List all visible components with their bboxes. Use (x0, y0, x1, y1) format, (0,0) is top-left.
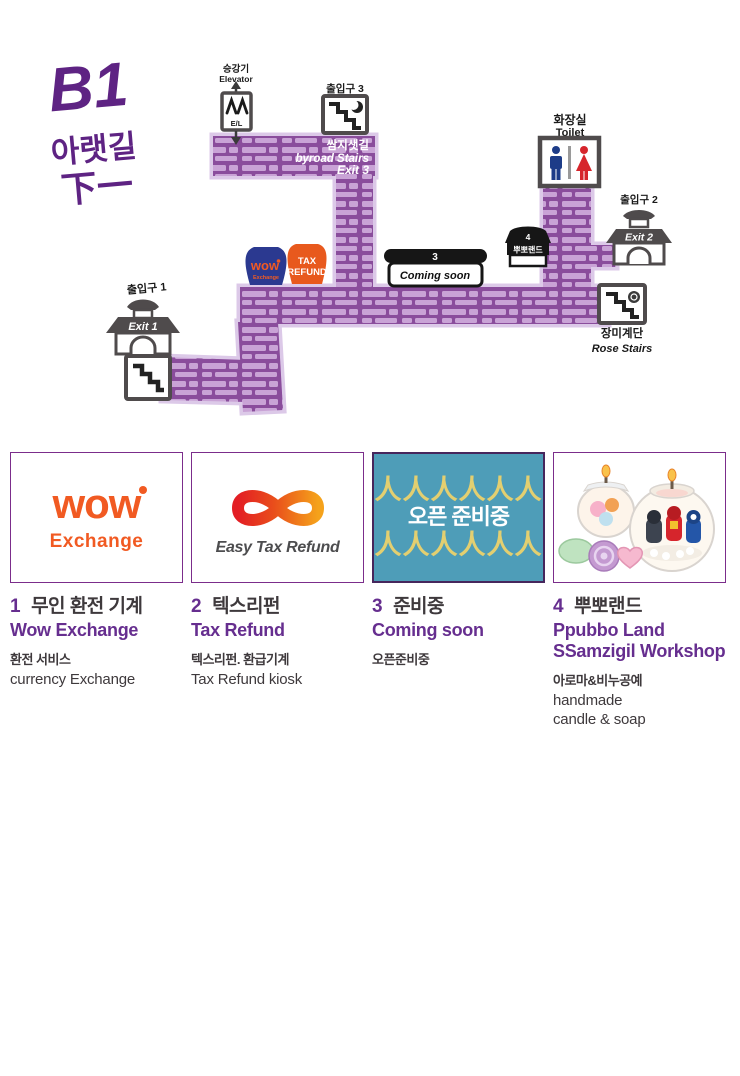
wow-shop-dot (277, 259, 281, 263)
wow-shop-text: wow (250, 258, 280, 273)
candle-soap-photo (554, 453, 725, 582)
people-figures-row: 人人人人人人 (375, 531, 543, 559)
legend-desc-ko: 아로마&비누공예 (553, 670, 726, 689)
exit2-marker: 출입구 2 Exit 2 (606, 193, 672, 264)
legend-number: 3 (372, 596, 382, 617)
legend-title-row: 2텍스리펀 (191, 591, 364, 618)
infinity-icon (214, 479, 342, 537)
legend-item-ppubbo-land: 4뿌뽀랜드 Ppubbo LandSSamzigil Workshop 아로마&… (553, 452, 726, 730)
exit2-arch (628, 248, 650, 264)
svg-text:쌈지샛길: 쌈지샛길 (327, 138, 369, 152)
ppubbo-number: 4 (526, 232, 531, 242)
coming-soon-shop-marker: 3 Coming soon (384, 249, 487, 286)
legend-title-en: Coming soon (372, 620, 545, 641)
people-figures-row: 人人人人人人 (375, 476, 543, 504)
floor-guide-page: B1 아랫길 下一 쌈지샛길 byroad Stairs Exit 3 승강기 … (0, 0, 740, 1076)
legend-title-en: Tax Refund (191, 620, 364, 641)
legend-item-tax-refund: Easy Tax Refund 2텍스리펀 Tax Refund 텍스리펀. 환… (191, 452, 364, 690)
elevator-el-text: E/L (231, 119, 243, 128)
easy-tax-refund-logo-text: Easy Tax Refund (216, 539, 340, 557)
legend-title-ko: 뿌뽀랜드 (574, 596, 642, 617)
floor-title-b1: B1 (46, 50, 131, 126)
coming-soon-number: 3 (432, 252, 438, 263)
exit2-label: 출입구 2 (620, 193, 658, 206)
wow-shop-marker: wow Exchange (245, 247, 286, 285)
rose-icon (628, 291, 640, 303)
coming-soon-text: Coming soon (400, 270, 471, 282)
coming-soon-banner-box: 人人人人人人 오픈 준비중 人人人人人人 (372, 452, 545, 583)
legend-desc-ko: 텍스리펀. 환급기계 (191, 649, 364, 668)
legend-number: 4 (553, 596, 563, 617)
tax-shop-line1: TAX (298, 256, 317, 267)
wow-logo-sub: Exchange (50, 531, 144, 553)
tax-refund-logo-box: Easy Tax Refund (191, 452, 364, 583)
banner-text: 오픈 준비중 (408, 505, 509, 529)
ppubbo-body (510, 255, 546, 266)
legend-title-en: Ppubbo LandSSamzigil Workshop (553, 620, 726, 662)
exit2-neck (630, 219, 648, 227)
wow-logo: wow Exchange (50, 483, 144, 553)
exit1-neck (134, 310, 152, 318)
legend-desc-ko: 오픈준비중 (372, 649, 545, 668)
rose-stairs-marker: 장미계단 Rose Stairs (592, 285, 653, 355)
legend-item-coming-soon: 人人人人人人 오픈 준비중 人人人人人人 3준비중 Coming soon 오픈… (372, 452, 545, 668)
exit1-marker: 출입구 1 Exit 1 (106, 279, 180, 399)
ppubbo-text: 뿌뽀랜드 (513, 245, 543, 255)
legend-title-en: Wow Exchange (10, 620, 183, 641)
legend-desc-en: Tax Refund kiosk (191, 671, 364, 690)
exit1-label: 출입구 1 (126, 279, 167, 296)
tax-shop-line2: REFUND (287, 267, 327, 278)
moon-icon-cut (349, 100, 359, 110)
exit3-label: 출입구 3 (326, 82, 364, 95)
floor-title-hanja: 下一 (59, 164, 134, 211)
legend-title-ko: 무인 환전 기계 (31, 596, 142, 617)
legend-title-row: 1무인 환전 기계 (10, 591, 183, 618)
legend-desc-ko: 환전 서비스 (10, 649, 183, 668)
wow-exchange-logo-box: wow Exchange (10, 452, 183, 583)
legend-title-ko: 텍스리펀 (212, 596, 280, 617)
legend-number: 2 (191, 596, 201, 617)
rose-label-ko: 장미계단 (601, 326, 644, 340)
tax-refund-shop-marker: TAX REFUND (287, 244, 327, 284)
legend-desc-en: handmadecandle & soap (553, 692, 726, 730)
wow-logo-word: wow (52, 483, 140, 525)
legend-title-row: 4뿌뽀랜드 (553, 591, 726, 618)
exit2-top-roof (623, 210, 655, 219)
svg-text:Exit 3: Exit 3 (337, 163, 369, 177)
exit1-gate-text: Exit 1 (128, 321, 157, 333)
legend-title-row: 3준비중 (372, 591, 545, 618)
wow-shop-sub: Exchange (253, 275, 279, 281)
floor-title: B1 아랫길 下一 (43, 50, 142, 212)
exit3-marker: 출입구 3 (323, 82, 367, 133)
toilet-marker: 화장실 Toilet (540, 112, 599, 186)
b1-floor-map: B1 아랫길 下一 쌈지샛길 byroad Stairs Exit 3 승강기 … (0, 0, 740, 446)
wow-logo-dot (139, 486, 147, 494)
exit1-top-roof (127, 300, 159, 311)
rose-label-en: Rose Stairs (592, 343, 653, 355)
legend-title-ko: 준비중 (393, 596, 444, 617)
ppubbo-shop-marker: 4 뿌뽀랜드 (505, 227, 551, 267)
exit1-arch (131, 337, 155, 354)
legend-desc-en: currency Exchange (10, 671, 183, 690)
ppubbo-photo-box (553, 452, 726, 583)
toilet-divider (568, 146, 571, 179)
legend-number: 1 (10, 596, 20, 617)
legend-item-wow-exchange: wow Exchange 1무인 환전 기계 Wow Exchange 환전 서… (10, 452, 183, 690)
toilet-label-ko: 화장실 (553, 112, 586, 127)
